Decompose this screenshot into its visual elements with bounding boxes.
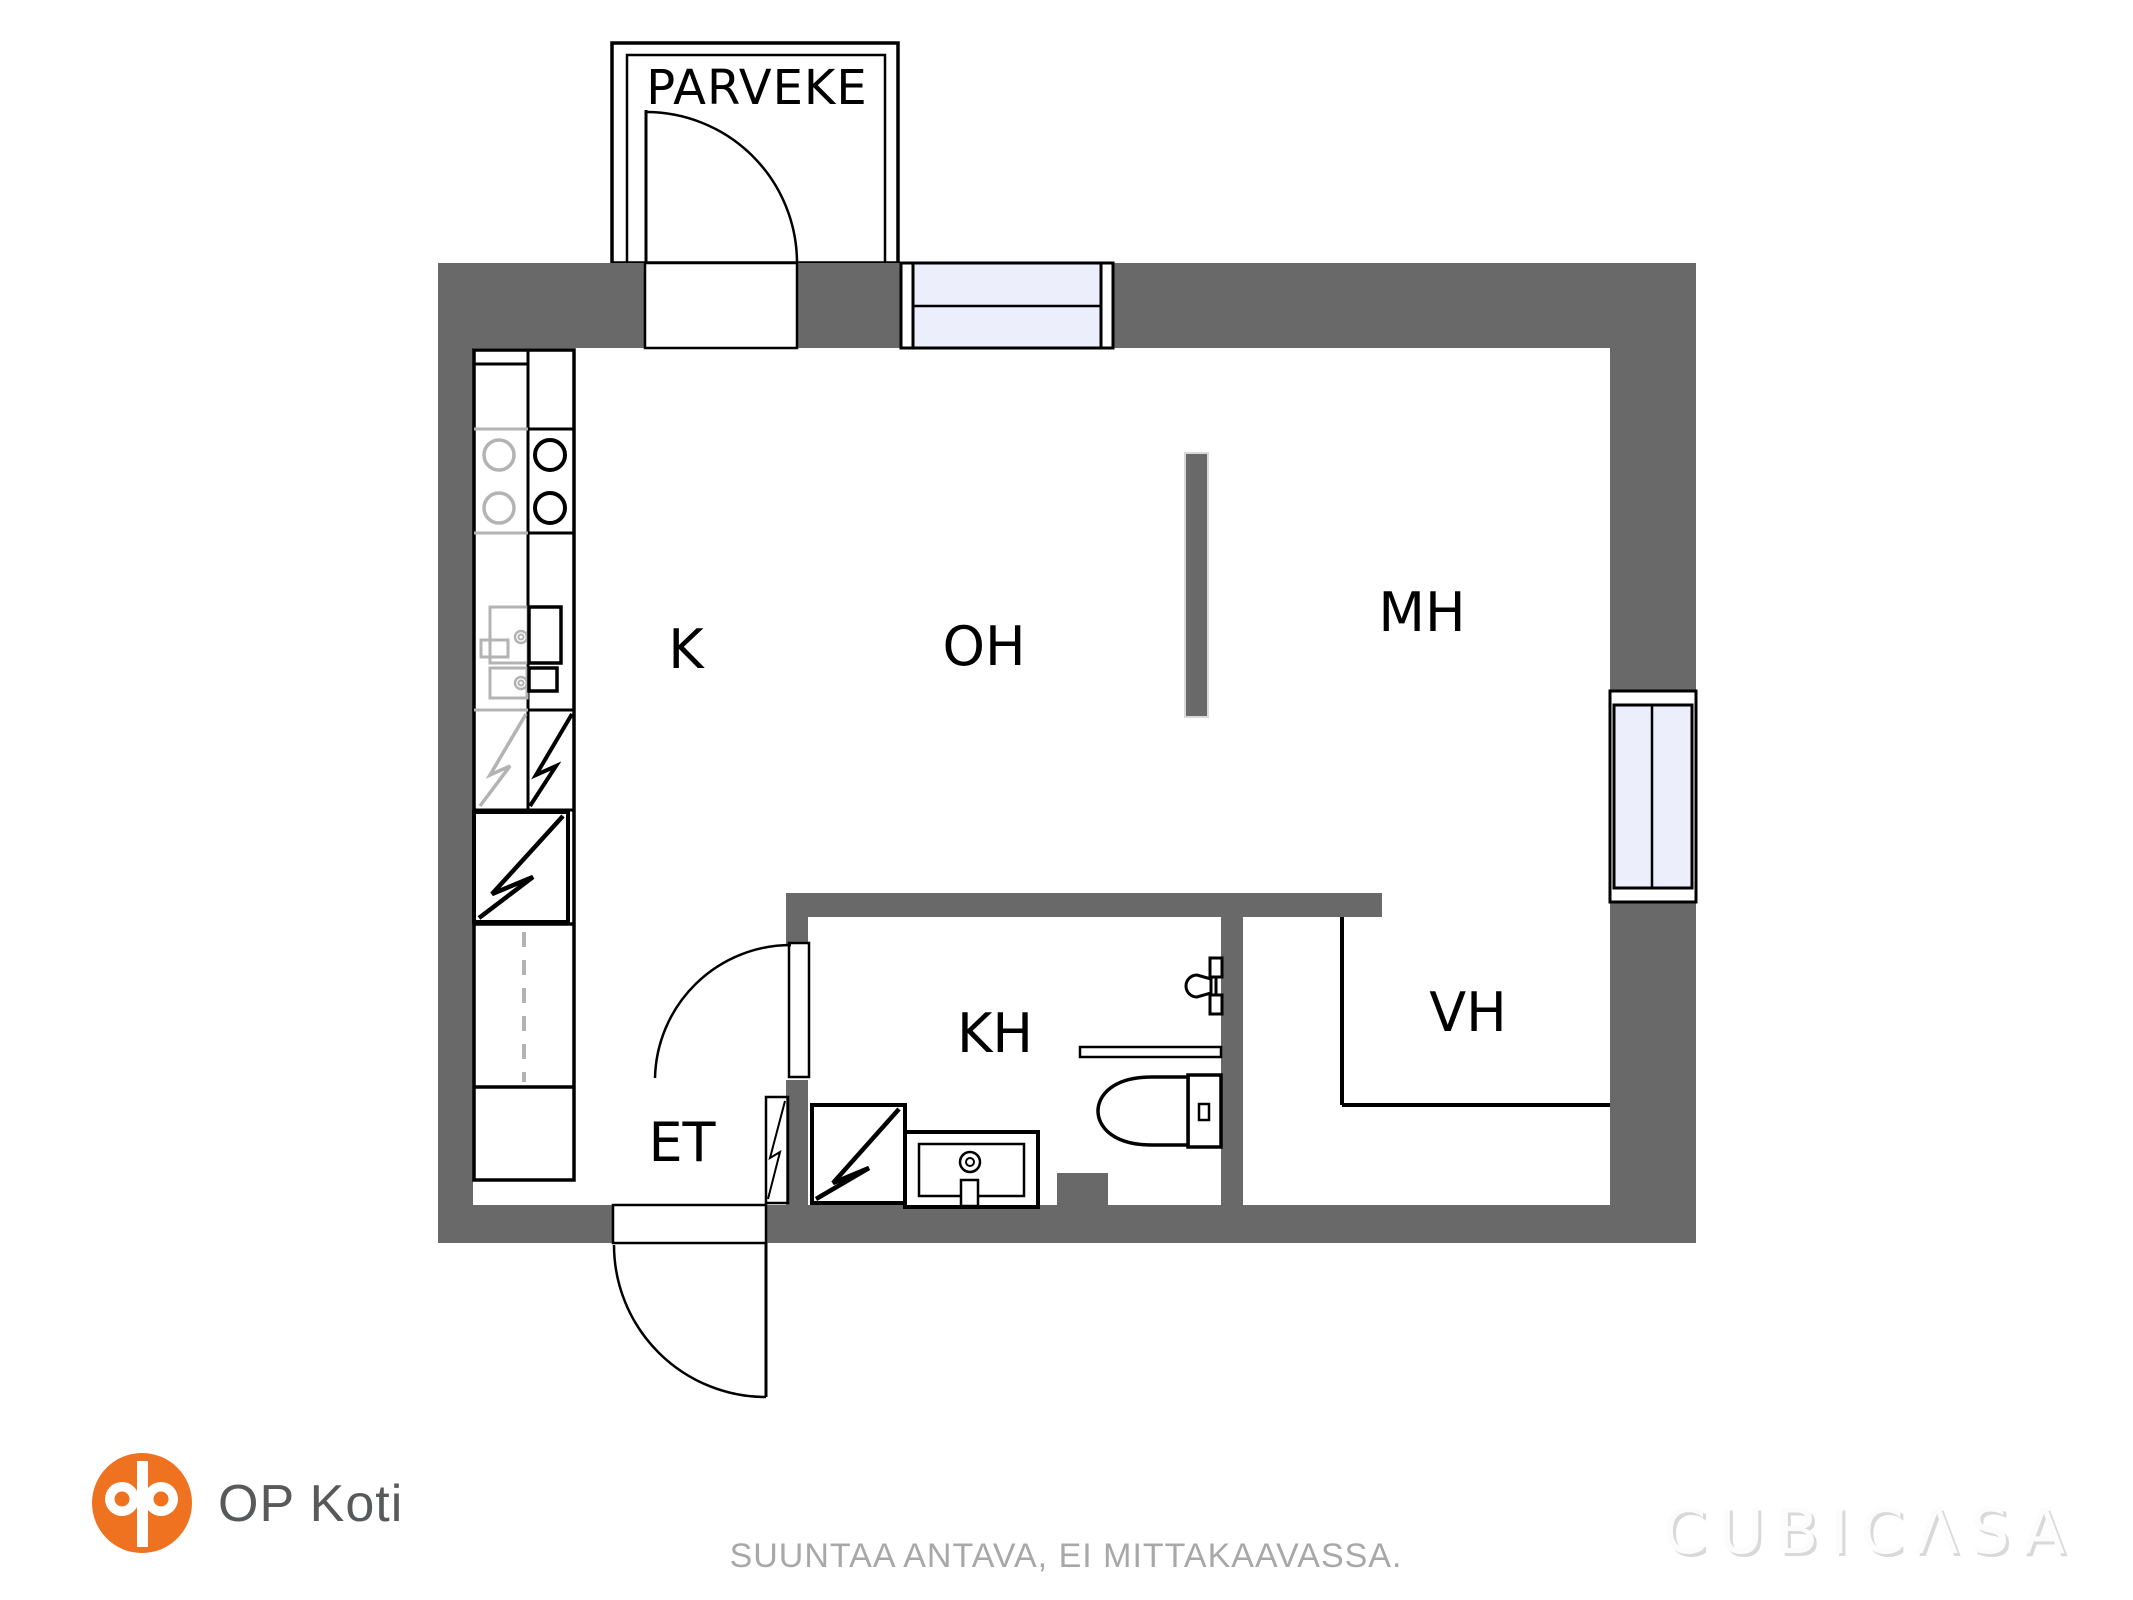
balcony-side-window [901, 263, 1113, 348]
wall-bathroom-left-lower [786, 1080, 808, 1205]
appliance-reservation-icon [766, 1097, 788, 1203]
divider-wall [1185, 453, 1208, 717]
floor-plan: PARVEKE K OH MH KH VH ET OP Koti SUUNTAA… [0, 0, 2133, 1600]
room-label-balcony: PARVEKE [646, 60, 867, 116]
room-label-kitchen: K [668, 618, 705, 681]
wall-bathroom-top [786, 893, 1382, 917]
disclaimer-text: SUUNTAA ANTAVA, EI MITTAKAAVASSA. [730, 1537, 1403, 1575]
bathroom-door [655, 943, 809, 1078]
entrance-door [614, 1243, 766, 1397]
bathroom-fixtures [766, 958, 1222, 1207]
room-label-bathroom: KH [957, 1002, 1033, 1065]
bathroom-sink-icon [905, 1132, 1038, 1207]
op-koti-logo: OP Koti [92, 1453, 403, 1553]
walls [438, 263, 1696, 1243]
room-label-bedroom: MH [1378, 581, 1465, 644]
room-label-closet: VH [1429, 981, 1507, 1044]
toilet-icon [1098, 1075, 1221, 1147]
watermark-text: CUBICΛSA [1663, 1495, 2077, 1568]
balcony-door-threshold [645, 263, 797, 348]
wall-left [438, 263, 473, 1243]
room-label-entry: ET [648, 1111, 716, 1174]
shower-rail [1080, 1047, 1221, 1057]
kitchen-counter [474, 350, 574, 1180]
cubicasa-watermark: CUBICΛSA CUBICΛSA [1663, 1495, 2080, 1571]
room-label-living-room: OH [942, 615, 1025, 678]
washing-machine-icon [812, 1105, 905, 1203]
door-leaf [789, 943, 809, 1077]
shower-faucet-icon [1186, 958, 1222, 1014]
op-koti-wordmark: OP Koti [218, 1475, 403, 1533]
wall-bathroom-left-upper [786, 893, 808, 945]
entrance-threshold [613, 1205, 766, 1243]
wall-bathroom-closet [1221, 917, 1243, 1205]
wall-stub-bathroom-bottom [1057, 1173, 1108, 1205]
bedroom-window [1610, 691, 1696, 902]
door-swing-arc [655, 945, 791, 1078]
floor-plan-page: PARVEKE K OH MH KH VH ET OP Koti SUUNTAA… [0, 0, 2133, 1600]
door-swing-arc [614, 1245, 766, 1397]
